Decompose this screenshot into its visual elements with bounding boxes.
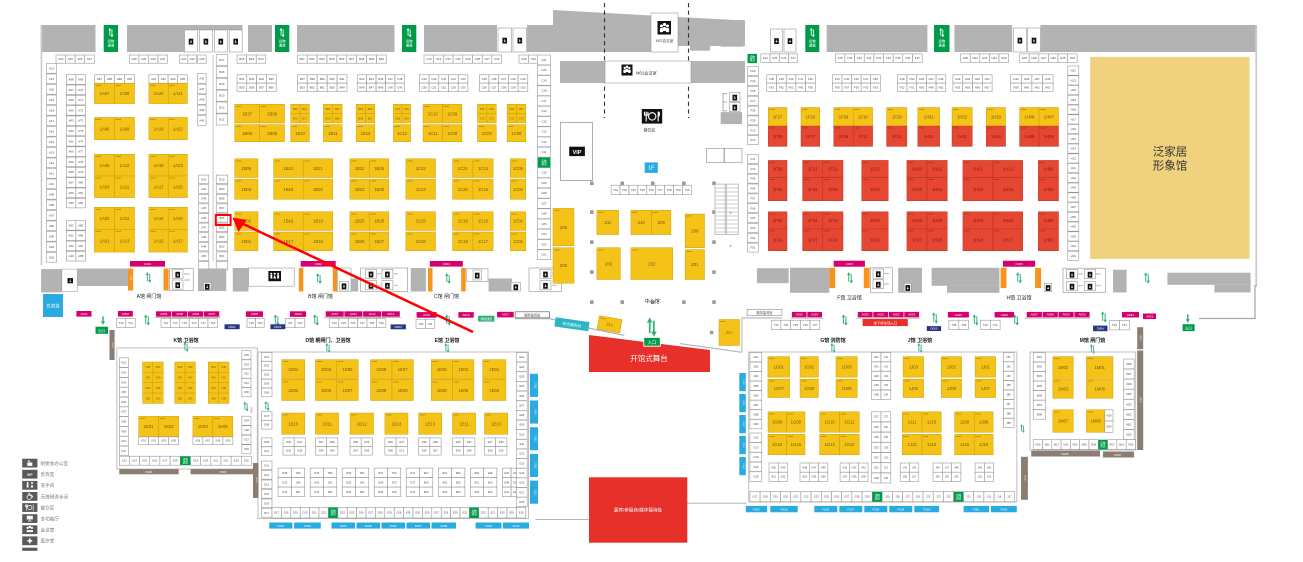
svg-text:B42: B42 xyxy=(359,77,364,81)
svg-text:E03: E03 xyxy=(520,375,525,379)
svg-text:M18: M18 xyxy=(1119,443,1125,447)
svg-text:T32: T32 xyxy=(774,323,779,327)
svg-text:santek: santek xyxy=(275,159,281,162)
svg-text:通道: 通道 xyxy=(183,460,189,464)
svg-text:E60: E60 xyxy=(422,449,427,453)
svg-text:santek: santek xyxy=(904,357,910,360)
svg-text:F025: F025 xyxy=(781,508,788,512)
svg-text:1K03: 1K03 xyxy=(198,424,208,429)
svg-text:J47: J47 xyxy=(945,466,950,470)
svg-text:G22: G22 xyxy=(804,495,809,499)
svg-text:D005: D005 xyxy=(1024,475,1026,481)
svg-text:santek: santek xyxy=(479,125,485,128)
svg-text:G57: G57 xyxy=(842,475,847,479)
svg-text:H39: H39 xyxy=(1013,77,1019,81)
svg-text:santek: santek xyxy=(769,108,775,111)
svg-text:A12: A12 xyxy=(49,161,55,165)
svg-text:1C20: 1C20 xyxy=(458,187,469,192)
svg-text:A86: A86 xyxy=(78,234,84,238)
svg-text:D18: D18 xyxy=(284,511,289,515)
svg-text:K06: K06 xyxy=(121,400,126,404)
svg-text:B25: B25 xyxy=(329,57,335,61)
svg-text:santek: santek xyxy=(444,105,450,108)
svg-text:santek: santek xyxy=(160,417,166,420)
svg-text:G43: G43 xyxy=(842,466,847,470)
svg-text:santek: santek xyxy=(150,208,156,211)
svg-text:M01会议室: M01会议室 xyxy=(636,70,657,77)
svg-text:santek: santek xyxy=(953,127,959,130)
svg-text:santek: santek xyxy=(769,357,775,360)
svg-text:1H23: 1H23 xyxy=(932,187,943,192)
svg-text:C49: C49 xyxy=(397,85,403,89)
svg-text:1G12: 1G12 xyxy=(844,442,855,447)
svg-text:santek: santek xyxy=(236,233,242,236)
svg-text:1E02: 1E02 xyxy=(489,388,499,393)
svg-text:1F16: 1F16 xyxy=(808,218,818,223)
svg-text:D66: D66 xyxy=(378,480,383,484)
svg-text:santek: santek xyxy=(275,233,281,236)
svg-text:F55: F55 xyxy=(863,85,868,89)
svg-text:santek: santek xyxy=(386,414,392,417)
svg-text:1G02: 1G02 xyxy=(804,365,815,370)
svg-text:D40: D40 xyxy=(296,480,301,484)
svg-text:D22: D22 xyxy=(321,511,326,515)
svg-text:B52: B52 xyxy=(310,85,315,89)
svg-text:餐饮区: 餐饮区 xyxy=(644,127,656,133)
svg-text:J29: J29 xyxy=(885,495,890,499)
svg-text:santek: santek xyxy=(863,178,869,181)
svg-text:1F: 1F xyxy=(648,166,655,172)
svg-text:G53: G53 xyxy=(802,475,807,479)
svg-text:1F05: 1F05 xyxy=(773,167,783,172)
svg-text:C58: C58 xyxy=(501,85,507,89)
svg-text:1B37: 1B37 xyxy=(242,111,252,116)
svg-text:A87: A87 xyxy=(97,77,103,81)
svg-text:A37: A37 xyxy=(199,87,205,91)
svg-text:K35: K35 xyxy=(156,386,161,390)
svg-text:1K01: 1K01 xyxy=(144,424,154,429)
svg-text:A75: A75 xyxy=(78,129,84,133)
svg-text:1G11: 1G11 xyxy=(844,420,855,425)
svg-text:santek: santek xyxy=(116,208,122,211)
svg-text:G59: G59 xyxy=(874,383,879,387)
svg-text:M馆 闸门馆: M馆 闸门馆 xyxy=(1080,337,1106,344)
svg-text:H43: H43 xyxy=(965,77,971,81)
svg-text:A02: A02 xyxy=(49,255,55,259)
svg-text:1E09: 1E09 xyxy=(398,388,408,393)
svg-text:D45: D45 xyxy=(330,449,335,453)
svg-text:D73: D73 xyxy=(392,480,397,484)
svg-text:1F18: 1F18 xyxy=(828,238,838,243)
svg-text:santek: santek xyxy=(454,233,460,236)
svg-text:D58: D58 xyxy=(353,440,358,444)
svg-text:K36: K36 xyxy=(156,376,161,380)
svg-text:1C01: 1C01 xyxy=(513,239,524,244)
svg-text:1C02: 1C02 xyxy=(513,219,524,224)
svg-text:santek: santek xyxy=(304,212,310,215)
svg-text:C12: C12 xyxy=(436,57,442,61)
svg-text:A57: A57 xyxy=(69,181,75,185)
svg-text:santek: santek xyxy=(964,212,970,215)
svg-text:1J08: 1J08 xyxy=(979,420,989,425)
svg-text:C45: C45 xyxy=(422,77,428,81)
svg-text:A001: A001 xyxy=(80,312,87,316)
svg-text:G25: G25 xyxy=(824,495,829,499)
svg-text:1B23: 1B23 xyxy=(355,187,365,192)
svg-text:1B22: 1B22 xyxy=(355,166,365,171)
svg-text:C48: C48 xyxy=(397,77,403,81)
svg-text:D69: D69 xyxy=(388,440,393,444)
svg-text:Z11: Z11 xyxy=(604,220,612,225)
svg-text:A05: A05 xyxy=(49,234,55,238)
svg-text:E47: E47 xyxy=(467,440,472,444)
svg-text:E59: E59 xyxy=(422,440,427,444)
svg-text:K36: K36 xyxy=(221,365,226,369)
svg-text:santek: santek xyxy=(953,108,959,111)
svg-text:M30: M30 xyxy=(1106,425,1112,429)
svg-text:C37: C37 xyxy=(501,77,507,81)
svg-text:H33: H33 xyxy=(972,56,978,60)
svg-text:H17: H17 xyxy=(1071,117,1077,121)
svg-text:C19: C19 xyxy=(541,79,547,83)
svg-text:B65: B65 xyxy=(358,107,363,111)
svg-text:1F27: 1F27 xyxy=(773,115,783,120)
svg-text:D47: D47 xyxy=(319,440,324,444)
svg-text:1C19: 1C19 xyxy=(458,219,469,224)
svg-text:Z08: Z08 xyxy=(691,229,699,234)
svg-text:A27: A27 xyxy=(87,57,93,61)
svg-text:1H21: 1H21 xyxy=(973,167,984,172)
svg-text:B17: B17 xyxy=(219,58,225,62)
svg-text:santek: santek xyxy=(424,105,430,108)
svg-text:B37: B37 xyxy=(300,77,305,81)
svg-text:T13: T13 xyxy=(173,321,178,325)
svg-text:B33: B33 xyxy=(259,77,264,81)
svg-text:F28: F28 xyxy=(838,56,843,60)
svg-text:H03: H03 xyxy=(1071,234,1077,238)
svg-text:1A15: 1A15 xyxy=(154,239,164,244)
svg-text:1C12: 1C12 xyxy=(397,131,408,136)
svg-text:santek: santek xyxy=(841,412,847,415)
svg-text:A31: A31 xyxy=(160,57,166,61)
svg-text:F013: F013 xyxy=(534,436,537,442)
svg-text:A08: A08 xyxy=(49,203,55,207)
svg-text:santek: santek xyxy=(903,412,909,415)
svg-text:1G15: 1G15 xyxy=(791,442,802,447)
svg-text:K21: K21 xyxy=(214,459,219,463)
svg-text:1J15: 1J15 xyxy=(960,442,970,447)
svg-text:K23: K23 xyxy=(234,459,239,463)
svg-text:G29: G29 xyxy=(865,495,870,499)
svg-text:Z05: Z05 xyxy=(560,263,568,268)
svg-text:D39: D39 xyxy=(296,471,301,475)
svg-text:A49: A49 xyxy=(69,254,75,258)
svg-text:C35: C35 xyxy=(520,77,526,81)
svg-text:B19: B19 xyxy=(249,57,255,61)
svg-text:1B11: 1B11 xyxy=(328,131,338,136)
svg-text:M27: M27 xyxy=(1126,372,1132,376)
svg-text:J17: J17 xyxy=(1007,495,1012,499)
svg-text:1M01: 1M01 xyxy=(1094,365,1105,370)
svg-text:santek: santek xyxy=(824,161,830,164)
svg-text:C36: C36 xyxy=(511,77,517,81)
svg-text:A43: A43 xyxy=(201,197,206,201)
svg-text:santek: santek xyxy=(769,178,775,181)
svg-text:H06: H06 xyxy=(1071,215,1077,219)
svg-text:1F07: 1F07 xyxy=(806,134,816,139)
svg-text:E50: E50 xyxy=(475,471,480,475)
svg-text:A70: A70 xyxy=(78,88,84,92)
svg-text:1F06: 1F06 xyxy=(773,134,783,139)
svg-text:1A21: 1A21 xyxy=(173,91,183,96)
svg-text:C38: C38 xyxy=(491,77,497,81)
svg-text:santek: santek xyxy=(351,233,357,236)
svg-text:M19: M19 xyxy=(1128,443,1134,447)
svg-text:贵宾室: 贵宾室 xyxy=(41,471,55,478)
svg-text:K31: K31 xyxy=(244,381,249,385)
svg-text:santek: santek xyxy=(598,211,604,214)
svg-text:A60: A60 xyxy=(69,150,75,154)
svg-text:santek: santek xyxy=(169,208,175,211)
svg-text:J27: J27 xyxy=(906,495,911,499)
svg-text:F012: F012 xyxy=(534,463,537,469)
svg-text:F12: F12 xyxy=(750,138,755,142)
svg-text:B46: B46 xyxy=(378,85,383,89)
svg-text:A50: A50 xyxy=(201,254,206,258)
svg-text:B48: B48 xyxy=(359,85,364,89)
svg-text:A66: A66 xyxy=(69,98,75,102)
svg-text:A016: A016 xyxy=(462,313,469,317)
svg-text:1B28: 1B28 xyxy=(374,219,384,224)
svg-text:A07: A07 xyxy=(49,213,55,217)
svg-text:Z10: Z10 xyxy=(638,220,646,225)
svg-text:E55: E55 xyxy=(456,480,461,484)
svg-text:santek: santek xyxy=(511,180,517,183)
svg-text:绿色通道: 绿色通道 xyxy=(481,316,493,321)
svg-text:H22: H22 xyxy=(1071,69,1077,73)
svg-text:K26: K26 xyxy=(244,447,249,451)
svg-text:1G01: 1G01 xyxy=(774,365,785,370)
svg-text:D08: D08 xyxy=(264,423,269,427)
svg-text:B49: B49 xyxy=(340,85,345,89)
svg-text:1A12: 1A12 xyxy=(120,216,130,221)
svg-text:G48: G48 xyxy=(802,466,807,470)
svg-text:1B16: 1B16 xyxy=(284,219,294,224)
svg-text:E25: E25 xyxy=(499,449,504,453)
svg-text:1A20: 1A20 xyxy=(154,91,164,96)
svg-text:E41: E41 xyxy=(504,490,509,494)
svg-text:A21: A21 xyxy=(49,77,55,81)
svg-text:K51: K51 xyxy=(141,439,146,443)
svg-text:santek: santek xyxy=(863,212,869,215)
svg-text:D45: D45 xyxy=(314,471,319,475)
svg-text:A013: A013 xyxy=(387,312,394,316)
svg-text:D25: D25 xyxy=(286,449,291,453)
svg-text:F028: F028 xyxy=(872,508,879,512)
svg-text:H09: H09 xyxy=(1071,186,1077,190)
svg-text:santek: santek xyxy=(1039,212,1045,215)
svg-text:F023: F023 xyxy=(753,508,760,512)
svg-text:F48: F48 xyxy=(873,77,878,81)
svg-text:santek: santek xyxy=(837,380,843,383)
svg-text:1C25: 1C25 xyxy=(416,219,427,224)
svg-text:1H27: 1H27 xyxy=(912,238,923,243)
svg-text:1A27: 1A27 xyxy=(173,239,183,244)
svg-text:santek: santek xyxy=(95,177,101,180)
svg-text:C29: C29 xyxy=(465,57,471,61)
svg-text:D41: D41 xyxy=(296,490,301,494)
svg-text:F25: F25 xyxy=(772,56,777,60)
svg-text:1H20: 1H20 xyxy=(973,187,984,192)
svg-text:A020: A020 xyxy=(862,313,869,317)
svg-text:A22: A22 xyxy=(49,66,55,70)
svg-text:J39: J39 xyxy=(884,383,889,387)
svg-text:santek: santek xyxy=(304,159,310,162)
svg-text:1H25: 1H25 xyxy=(932,218,943,223)
svg-text:F09: F09 xyxy=(750,177,755,181)
svg-text:santek: santek xyxy=(474,180,480,183)
svg-text:santek: santek xyxy=(804,230,810,233)
svg-text:santek: santek xyxy=(928,212,934,215)
svg-text:santek: santek xyxy=(484,360,490,363)
svg-text:T11: T11 xyxy=(128,321,133,325)
svg-text:K59: K59 xyxy=(226,439,231,443)
svg-text:T39: T39 xyxy=(961,323,966,327)
svg-text:出口: 出口 xyxy=(98,328,106,333)
svg-text:D23: D23 xyxy=(340,511,345,515)
svg-text:J86: J86 xyxy=(1007,393,1012,397)
svg-text:santek: santek xyxy=(903,435,909,438)
svg-text:C10: C10 xyxy=(426,57,432,61)
svg-text:santek: santek xyxy=(854,127,860,130)
svg-text:1C26: 1C26 xyxy=(416,239,427,244)
svg-text:B71: B71 xyxy=(302,116,307,120)
svg-text:B58: B58 xyxy=(249,85,254,89)
svg-text:santek: santek xyxy=(116,118,122,121)
svg-text:E43: E43 xyxy=(488,480,493,484)
svg-text:E13: E13 xyxy=(520,461,525,465)
svg-text:VIP: VIP xyxy=(27,473,33,477)
svg-text:santek: santek xyxy=(824,178,830,181)
svg-text:santek: santek xyxy=(1040,127,1046,130)
svg-text:E20: E20 xyxy=(500,511,505,515)
svg-text:1D12: 1D12 xyxy=(357,421,368,426)
svg-text:1B15: 1B15 xyxy=(284,187,294,192)
svg-text:K03: K03 xyxy=(121,380,126,384)
svg-text:C005: C005 xyxy=(846,262,854,266)
svg-text:santek: santek xyxy=(919,127,925,130)
svg-text:D001: D001 xyxy=(229,325,237,329)
svg-text:A007: A007 xyxy=(208,312,215,316)
svg-text:santek: santek xyxy=(769,127,775,130)
svg-text:J88: J88 xyxy=(1007,411,1012,415)
svg-text:E65: E65 xyxy=(424,490,429,494)
svg-text:santek: santek xyxy=(956,412,962,415)
svg-text:F001: F001 xyxy=(277,524,284,528)
svg-text:santek: santek xyxy=(116,177,122,180)
svg-text:D56: D56 xyxy=(346,471,351,475)
svg-text:F001: F001 xyxy=(973,508,980,512)
svg-text:1E13: 1E13 xyxy=(425,421,435,426)
svg-text:A55: A55 xyxy=(69,201,75,205)
svg-text:B030: B030 xyxy=(1139,397,1141,403)
svg-text:A025: A025 xyxy=(955,313,962,317)
svg-text:F011: F011 xyxy=(534,489,537,495)
svg-text:C63: C63 xyxy=(489,107,494,111)
svg-text:B28: B28 xyxy=(359,57,365,61)
svg-text:K27: K27 xyxy=(244,438,249,442)
svg-text:H62: H62 xyxy=(1045,85,1051,89)
svg-text:F53: F53 xyxy=(873,85,878,89)
svg-text:E62: E62 xyxy=(443,480,448,484)
svg-text:santek: santek xyxy=(841,435,847,438)
svg-text:1H26: 1H26 xyxy=(932,238,943,243)
svg-text:1B08: 1B08 xyxy=(267,111,277,116)
svg-text:通道: 通道 xyxy=(406,42,413,47)
svg-text:santek: santek xyxy=(304,233,310,236)
svg-text:santek: santek xyxy=(554,248,560,251)
svg-text:F023: F023 xyxy=(742,443,744,449)
svg-text:santek: santek xyxy=(769,230,775,233)
svg-text:santek: santek xyxy=(1039,230,1045,233)
svg-text:santek: santek xyxy=(444,125,450,128)
svg-text:F01: F01 xyxy=(750,246,755,250)
svg-text:H48: H48 xyxy=(938,77,944,81)
svg-text:1F03: 1F03 xyxy=(773,187,783,192)
svg-text:santek: santek xyxy=(801,357,807,360)
svg-text:1F12: 1F12 xyxy=(892,134,902,139)
svg-text:A031: A031 xyxy=(1127,313,1134,317)
svg-text:B23: B23 xyxy=(320,57,326,61)
svg-text:D57: D57 xyxy=(353,449,358,453)
svg-text:G001: G001 xyxy=(111,342,113,348)
svg-text:1C13: 1C13 xyxy=(478,166,489,171)
svg-text:santek: santek xyxy=(511,233,517,236)
svg-text:⇗: ⇗ xyxy=(729,244,732,248)
svg-text:1F29: 1F29 xyxy=(892,115,902,120)
svg-text:santek: santek xyxy=(908,178,914,181)
svg-text:F37: F37 xyxy=(915,56,920,60)
svg-text:santek: santek xyxy=(432,360,438,363)
svg-text:1F19: 1F19 xyxy=(828,218,838,223)
svg-text:E53: E53 xyxy=(456,490,461,494)
svg-text:H49: H49 xyxy=(929,85,935,89)
svg-text:G31: G31 xyxy=(874,466,879,470)
svg-text:T17: T17 xyxy=(201,321,206,325)
svg-text:M10: M10 xyxy=(1035,443,1041,447)
svg-text:⇗: ⇗ xyxy=(729,211,732,215)
svg-text:santek: santek xyxy=(835,108,841,111)
svg-text:A93: A93 xyxy=(170,77,176,81)
svg-text:M28: M28 xyxy=(1126,362,1132,366)
svg-text:G83: G83 xyxy=(753,374,759,378)
svg-text:A008: A008 xyxy=(251,312,258,316)
svg-text:J48: J48 xyxy=(954,466,959,470)
svg-text:A35: A35 xyxy=(199,57,205,61)
svg-text:兑奖处: 兑奖处 xyxy=(46,302,60,309)
svg-text:E58: E58 xyxy=(433,440,438,444)
svg-text:G52: G52 xyxy=(780,475,785,479)
svg-text:J41: J41 xyxy=(884,364,889,368)
svg-text:santek: santek xyxy=(1039,178,1045,181)
svg-text:D馆 朝闸门、卫浴馆: D馆 朝闸门、卫浴馆 xyxy=(305,337,350,344)
svg-text:E02: E02 xyxy=(520,365,525,369)
svg-text:服务监督处: 服务监督处 xyxy=(524,312,541,317)
svg-text:M36: M36 xyxy=(1091,443,1097,447)
svg-text:santek: santek xyxy=(236,125,242,128)
svg-text:D19: D19 xyxy=(293,511,298,515)
svg-text:1G16: 1G16 xyxy=(772,442,783,447)
